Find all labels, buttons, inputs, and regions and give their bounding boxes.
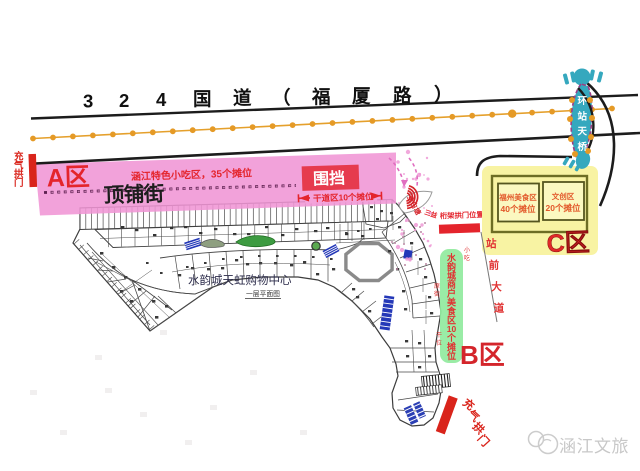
svg-text:前: 前 [489,259,500,272]
svg-text:福: 福 [311,86,331,107]
svg-text:4: 4 [156,89,167,110]
svg-text:国: 国 [193,89,212,110]
svg-text:20个摊位: 20个摊位 [546,203,581,213]
svg-text:小: 小 [464,246,470,254]
svg-text:桁架拱门位置: 桁架拱门位置 [440,210,485,221]
svg-text:）: ） [434,84,453,105]
svg-text:水韵城天虹购物中心: 水韵城天虹购物中心 [188,273,292,287]
svg-text:3: 3 [83,91,93,112]
svg-text:顶铺街: 顶铺街 [103,181,165,207]
svg-text:桥: 桥 [578,141,588,153]
svg-text:2: 2 [119,90,129,111]
svg-text:位: 位 [436,339,442,347]
svg-text:厦: 厦 [352,86,371,107]
svg-text:路: 路 [393,85,412,106]
svg-text:C区: C区 [546,229,590,258]
svg-text:环: 环 [578,96,588,107]
svg-text:干: 干 [436,332,442,339]
svg-text:原: 原 [434,283,440,290]
svg-text:一层平面图: 一层平面图 [246,290,280,298]
svg-text:B区: B区 [460,340,505,370]
svg-text:大: 大 [491,280,502,293]
svg-text:（: （ [272,87,291,108]
svg-text:位: 位 [447,350,456,361]
svg-text:道: 道 [233,88,252,109]
svg-text:道: 道 [494,302,505,315]
svg-text:天: 天 [578,127,588,138]
svg-text:站: 站 [486,237,497,250]
svg-text:40个摊位: 40个摊位 [501,204,536,214]
svg-text:门: 门 [14,177,24,189]
svg-text:围挡: 围挡 [313,169,346,189]
svg-text:涵江文旅: 涵江文旅 [559,437,629,456]
svg-text:干道区10个摊位: 干道区10个摊位 [313,191,374,203]
svg-text:文创区: 文创区 [552,191,575,201]
svg-text:福州美食区: 福州美食区 [498,192,537,202]
svg-text:A区: A区 [46,163,90,192]
svg-text:站: 站 [578,110,588,122]
svg-text:街: 街 [434,290,440,298]
svg-text:吃: 吃 [464,254,470,262]
